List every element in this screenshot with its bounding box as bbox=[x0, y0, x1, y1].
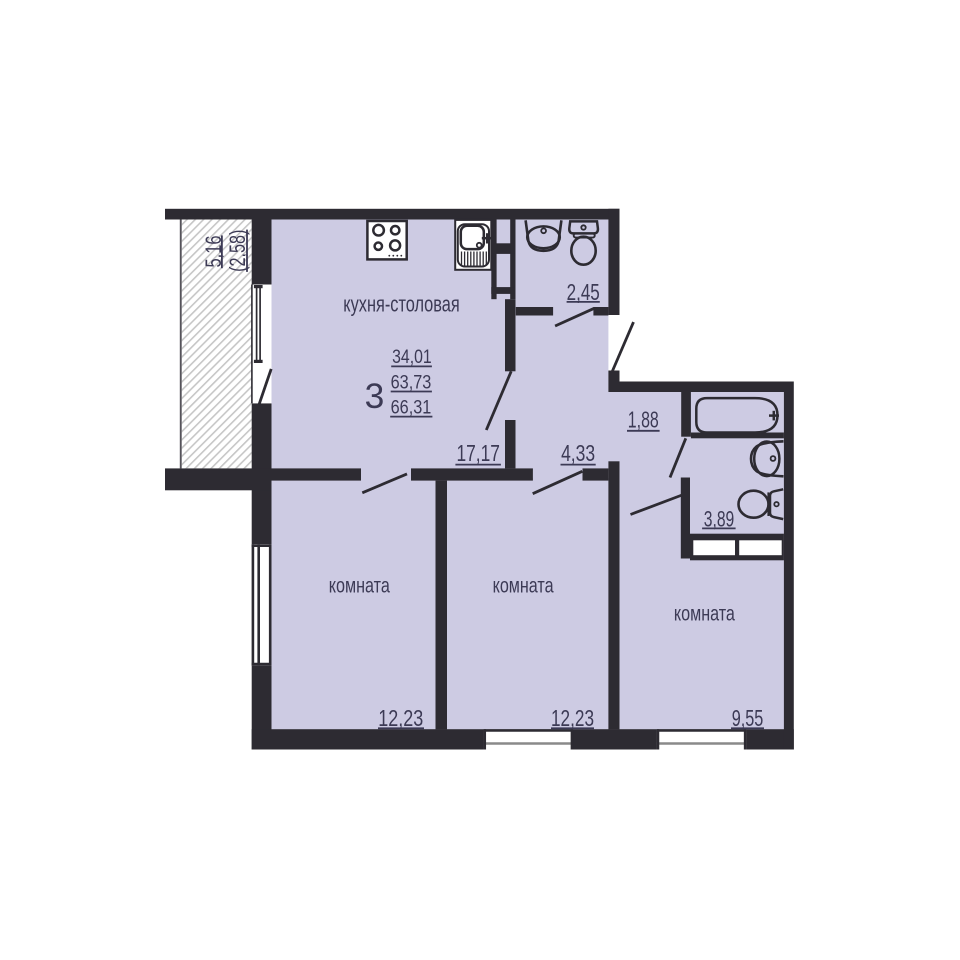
svg-text:кухня-столовая: кухня-столовая bbox=[343, 292, 459, 317]
svg-text:34,01: 34,01 bbox=[392, 346, 432, 368]
svg-text:комната: комната bbox=[674, 602, 735, 626]
svg-text:12,23: 12,23 bbox=[551, 705, 594, 731]
svg-text:4,33: 4,33 bbox=[561, 440, 595, 466]
svg-text:комната: комната bbox=[493, 574, 554, 598]
svg-text:1,88: 1,88 bbox=[628, 407, 659, 433]
svg-text:3: 3 bbox=[365, 376, 385, 416]
svg-text:9,55: 9,55 bbox=[732, 705, 764, 731]
svg-text:2,45: 2,45 bbox=[567, 279, 600, 305]
svg-text:17,17: 17,17 bbox=[456, 440, 500, 466]
svg-text:66,31: 66,31 bbox=[391, 397, 432, 419]
svg-text:комната: комната bbox=[329, 574, 390, 598]
svg-text:63,73: 63,73 bbox=[391, 371, 432, 393]
svg-text:12,23: 12,23 bbox=[378, 705, 423, 731]
